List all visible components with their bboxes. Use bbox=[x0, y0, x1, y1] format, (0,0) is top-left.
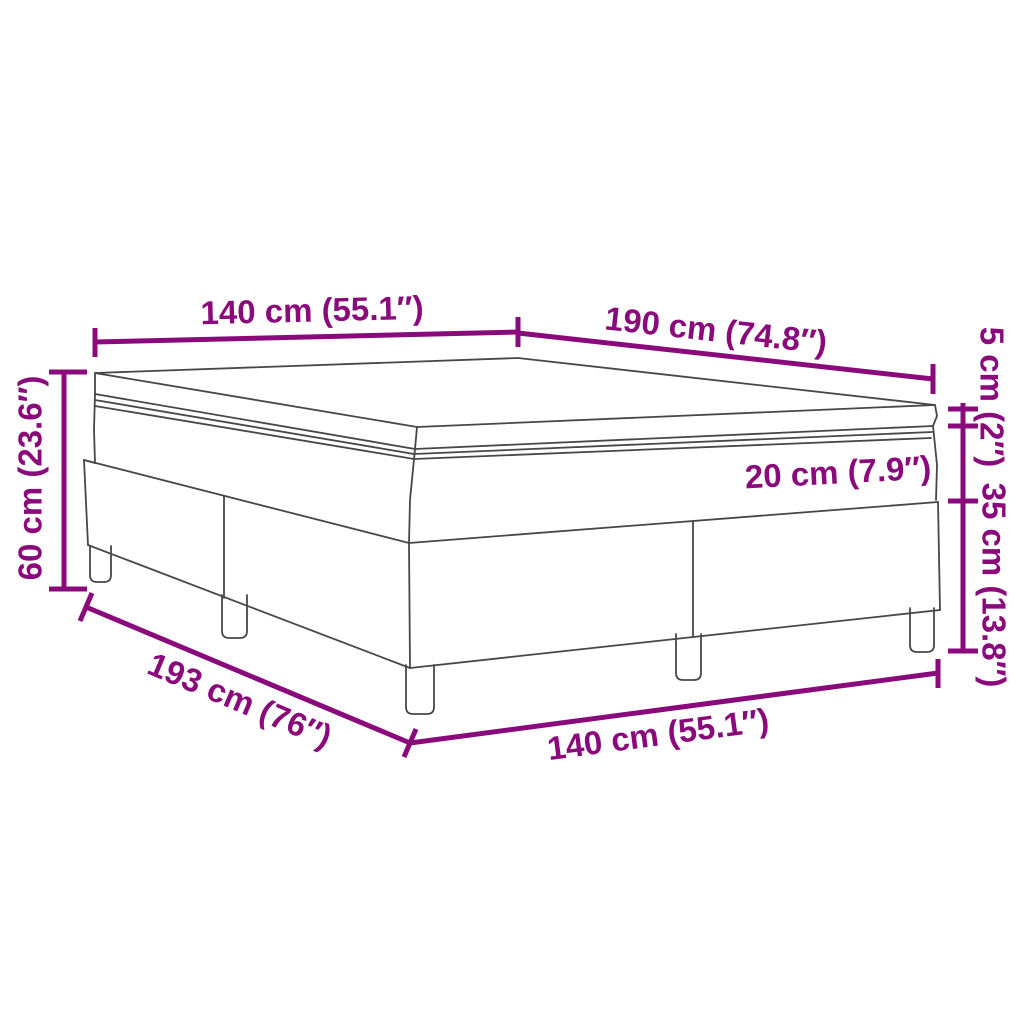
bed-leg-3 bbox=[406, 665, 434, 714]
topper-top-face bbox=[95, 358, 935, 427]
top-length-label-1: 190 cm (74.8″) bbox=[603, 299, 829, 360]
boxspring-top-edge-right bbox=[409, 502, 938, 543]
top-width-label-1: 140 cm (55.1″) bbox=[200, 289, 424, 331]
bed-leg-1 bbox=[90, 546, 111, 582]
mattress-near-corner-edge bbox=[409, 449, 415, 543]
bed-leg-5 bbox=[910, 608, 934, 652]
mattress-left-edge bbox=[94, 394, 95, 463]
bed-leg-4 bbox=[676, 634, 701, 680]
topper-right-tip-edge bbox=[933, 405, 937, 426]
left-total-height-label-1: 60 cm (23.6″) bbox=[12, 376, 49, 581]
right-height-scale-label-3: 20 cm (7.9″) bbox=[744, 449, 932, 496]
boxspring-top-edge-left bbox=[84, 460, 409, 543]
right-height-scale-label-2: 35 cm (13.8″) bbox=[976, 483, 1013, 688]
boxspring-bottom-edge-right bbox=[410, 610, 940, 668]
boxspring-near-corner-edge bbox=[409, 543, 410, 668]
right-height-scale-label-1: 5 cm (2″) bbox=[974, 327, 1011, 468]
bed-dimension-diagram: 140 cm (55.1″)190 cm (74.8″)5 cm (2″)35 … bbox=[0, 0, 1024, 1024]
mattress-right-edge bbox=[933, 426, 937, 500]
top-width-line bbox=[95, 332, 518, 342]
topper-near-corner-edge bbox=[415, 427, 417, 449]
diagram-svg: 140 cm (55.1″)190 cm (74.8″)5 cm (2″)35 … bbox=[0, 0, 1024, 1024]
boxspring-bottom-edge-left bbox=[88, 545, 410, 668]
boxspring-left-corner-edge bbox=[84, 460, 88, 545]
boxspring-right-corner-edge bbox=[938, 502, 940, 610]
